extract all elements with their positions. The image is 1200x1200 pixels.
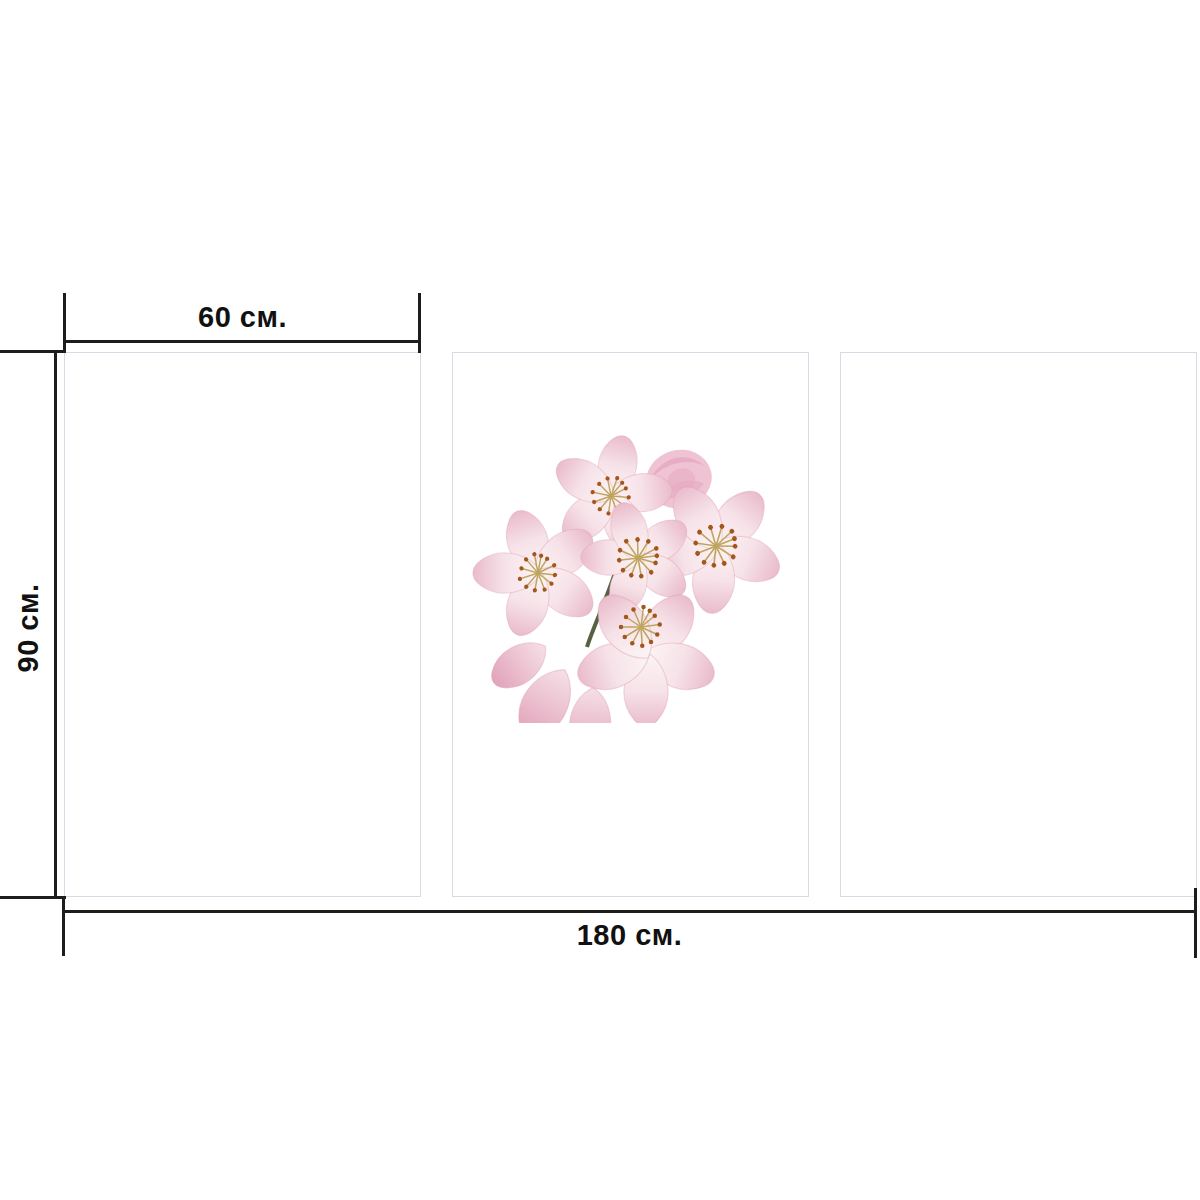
panel-right — [840, 352, 1197, 897]
product-dimension-diagram: 60 см. 90 см. 180 см. — [0, 0, 1200, 1200]
total-width-label: 180 см. — [62, 919, 1197, 952]
panel-width-label: 60 см. — [64, 301, 421, 334]
dimension-tick — [0, 350, 66, 353]
height-label: 90 см. — [12, 584, 45, 673]
dimension-line — [62, 910, 1197, 913]
panel-left — [64, 352, 421, 897]
dimension-line — [54, 350, 57, 899]
dimension-line — [63, 340, 421, 343]
cherry-blossom-image — [463, 423, 793, 723]
dimension-tick — [0, 896, 66, 899]
panel-center — [452, 352, 809, 897]
